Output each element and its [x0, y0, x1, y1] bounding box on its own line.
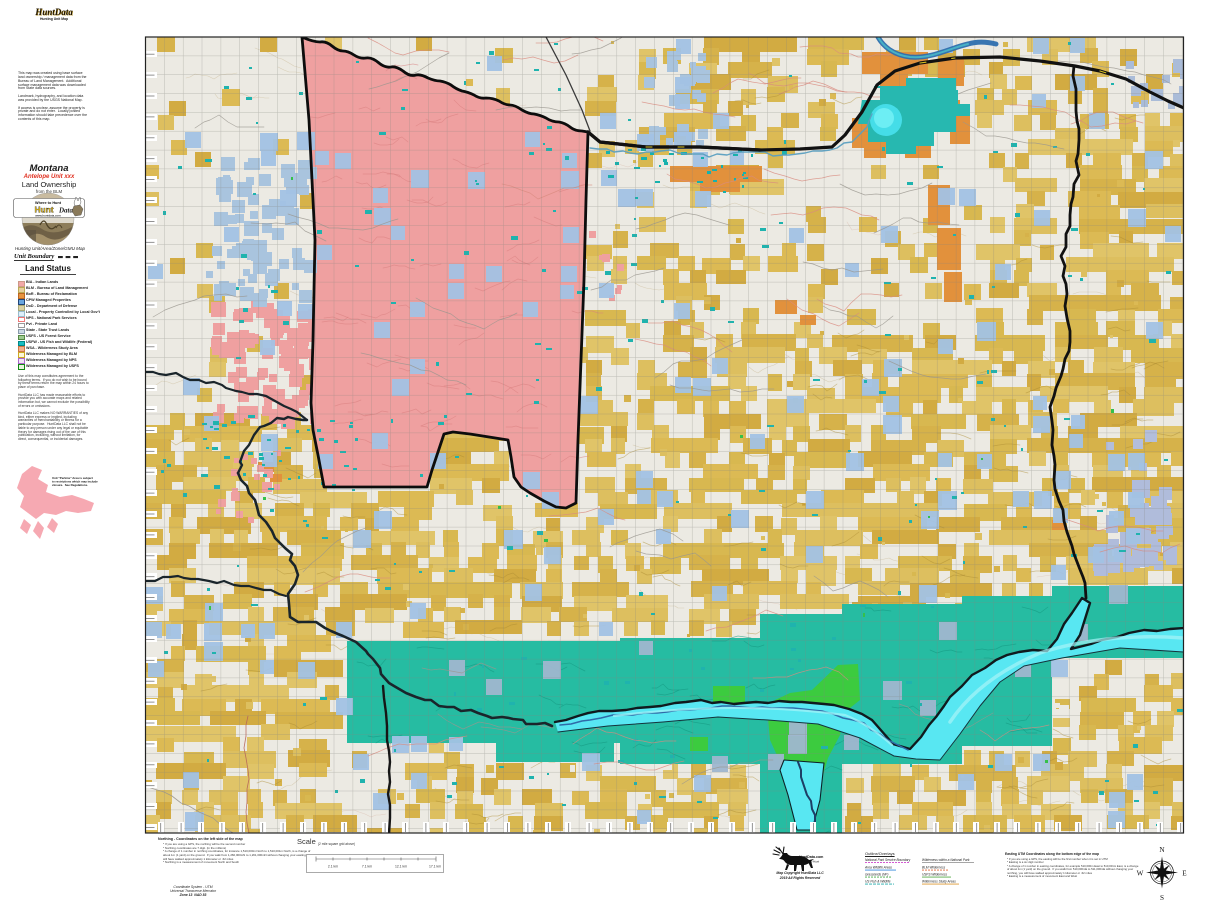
svg-text:Wilderness Study Areas: Wilderness Study Areas: [922, 880, 956, 884]
svg-text:Wilderness within a National P: Wilderness within a National Park: [922, 858, 970, 862]
svg-text:S: S: [1160, 894, 1164, 901]
svg-text:12.1 km: 12.1 km: [395, 865, 407, 869]
svg-text:National Park Service Boundary: National Park Service Boundary: [865, 858, 911, 862]
svg-text:closure. See Regulations.: closure. See Regulations.: [52, 483, 88, 487]
svg-text:2.1 km: 2.1 km: [328, 865, 338, 869]
svg-text:N: N: [1159, 846, 1165, 854]
svg-text:7.1 km: 7.1 km: [362, 865, 372, 869]
svg-text:HuntData.com: HuntData.com: [799, 855, 823, 859]
svg-text:USFS Wilderness: USFS Wilderness: [922, 873, 948, 877]
svg-text:E: E: [1182, 870, 1187, 878]
svg-text:W: W: [1137, 870, 1144, 878]
svg-text:US Fish & Wildlife: US Fish & Wildlife: [865, 880, 891, 884]
svg-text:BLM Wilderness: BLM Wilderness: [922, 866, 946, 870]
svg-text:17.1 km: 17.1 km: [429, 865, 441, 869]
svg-text:Where to Hunt: Where to Hunt: [801, 860, 819, 864]
svg-text:Grasslands (NF): Grasslands (NF): [865, 873, 888, 877]
svg-text:Area Wildlife Areas: Area Wildlife Areas: [864, 866, 892, 870]
